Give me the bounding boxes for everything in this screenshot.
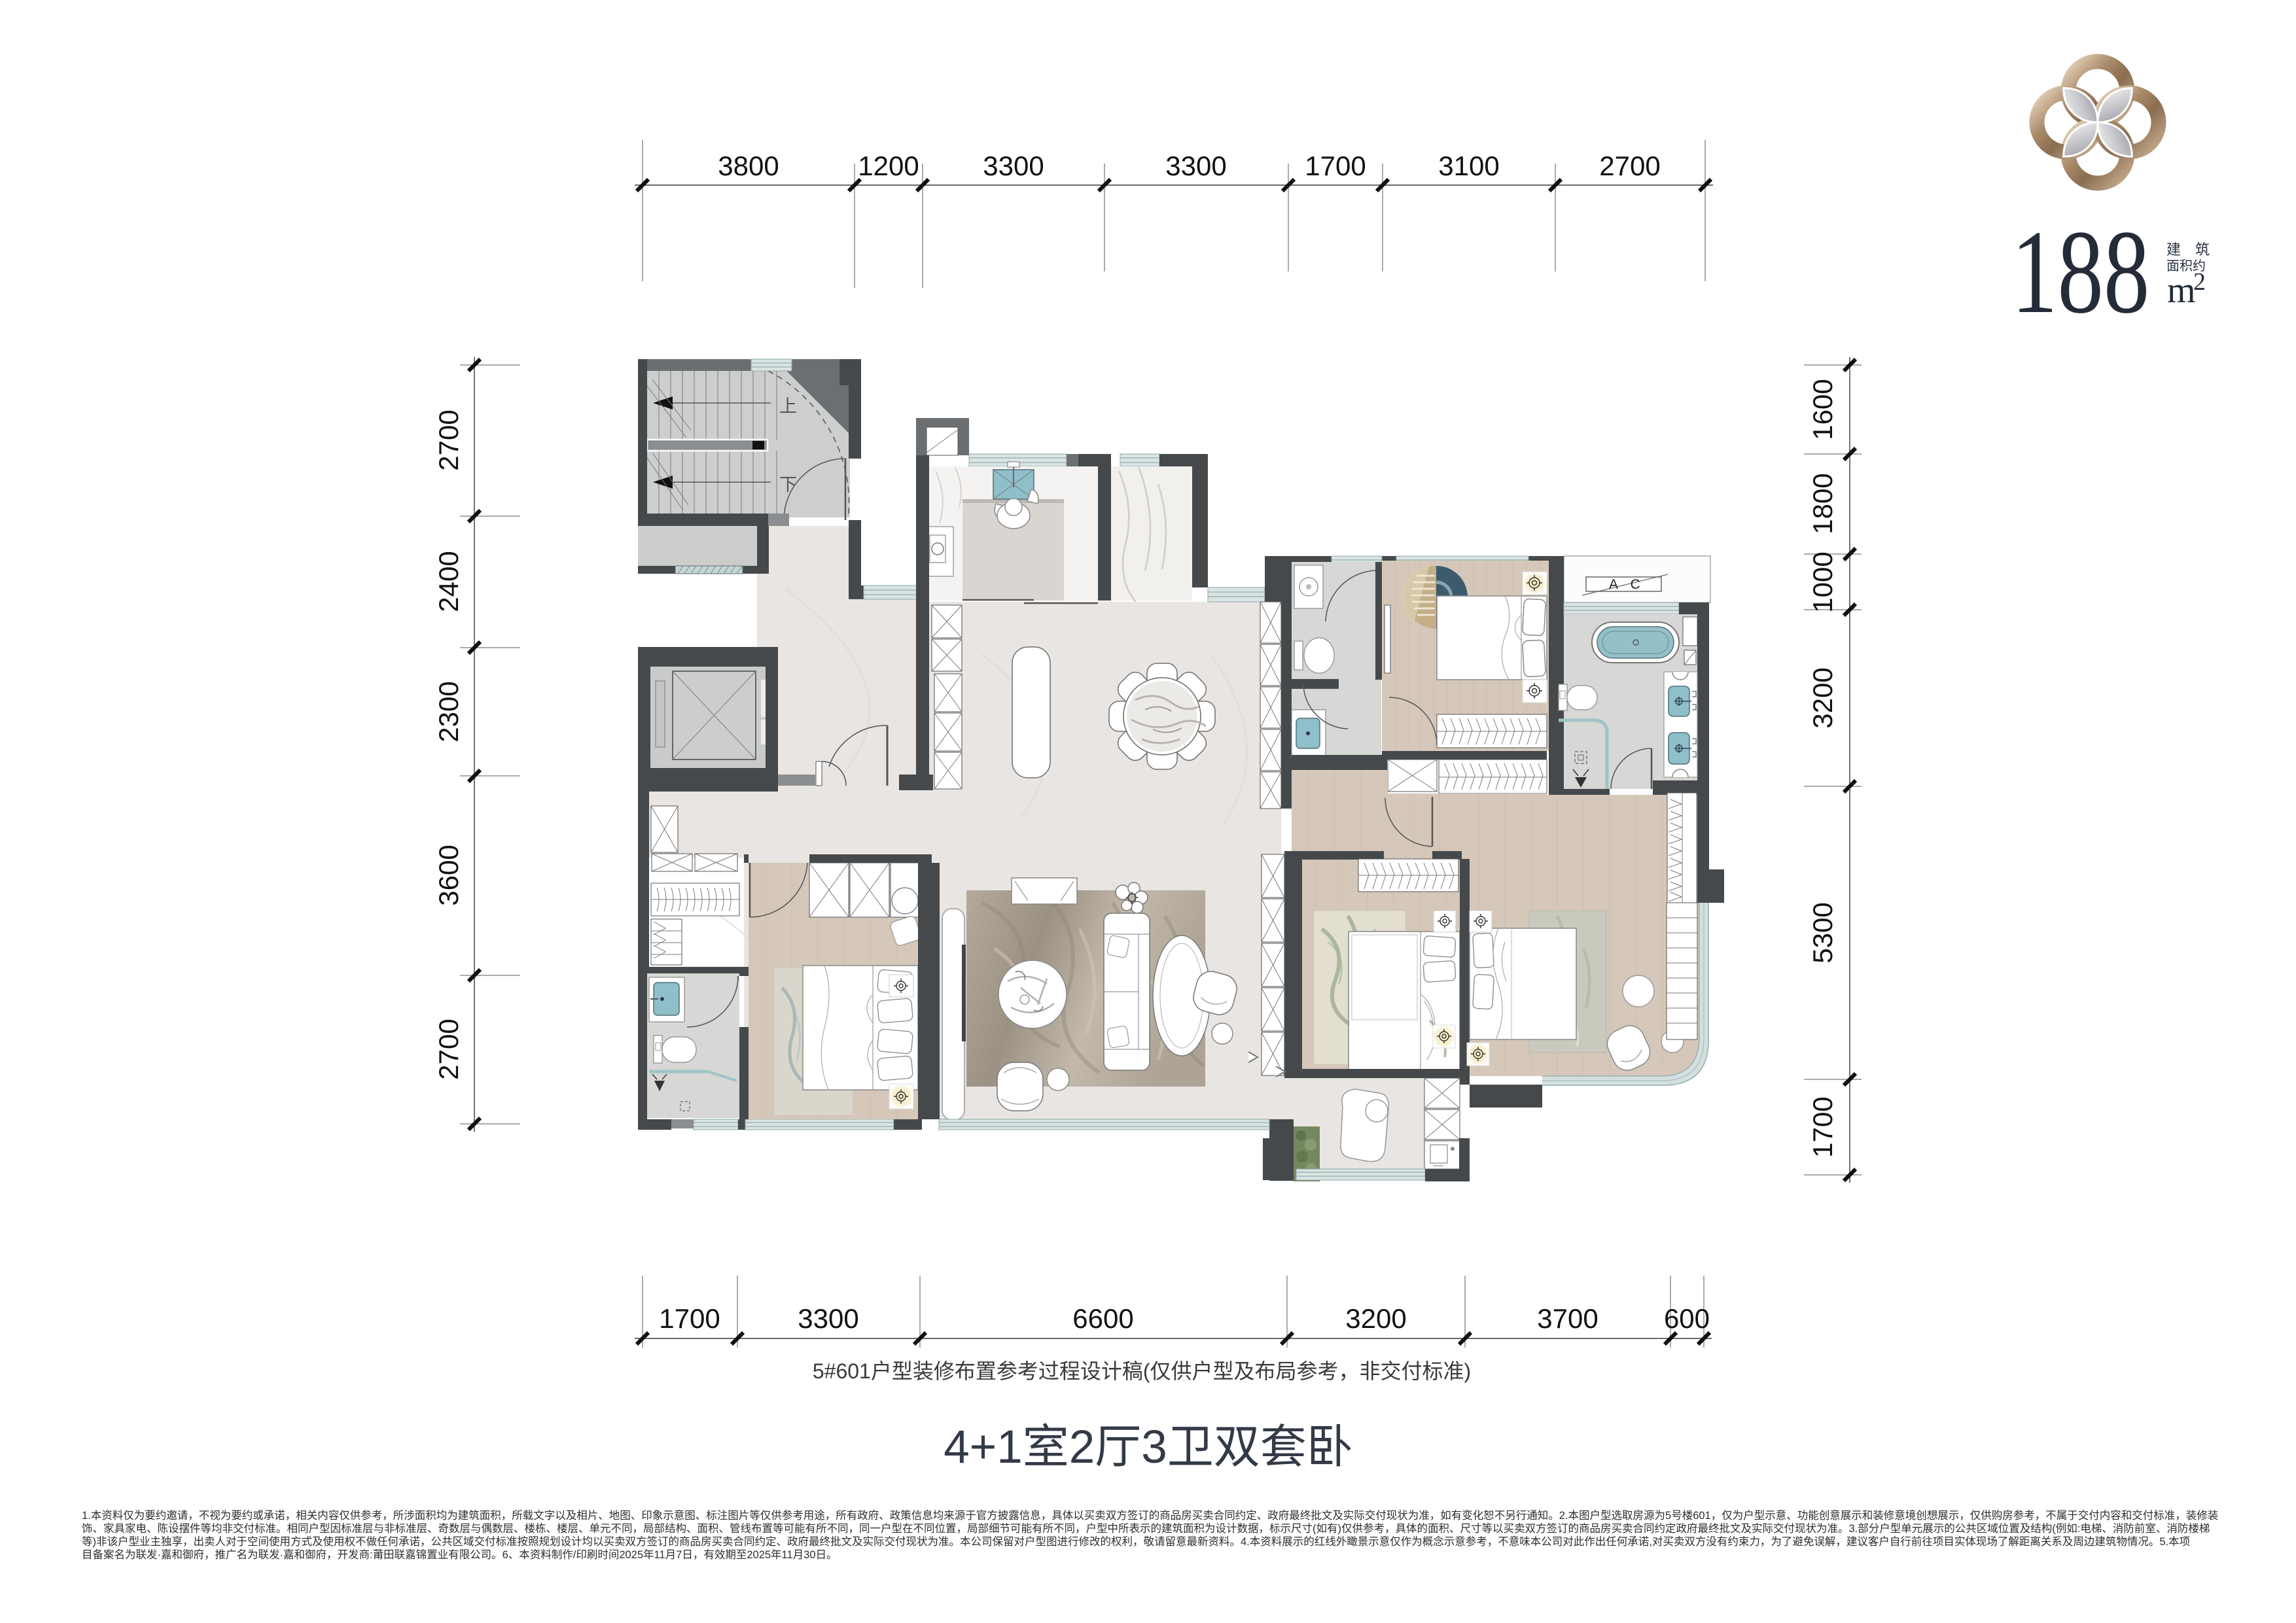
- svg-text:A C: A C: [1609, 577, 1645, 592]
- svg-text:4+1室2厅3卫双套卧: 4+1室2厅3卫双套卧: [944, 1422, 1352, 1473]
- svg-text:1000: 1000: [1807, 551, 1838, 612]
- svg-text:1200: 1200: [858, 150, 919, 181]
- svg-text:5300: 5300: [1807, 902, 1838, 963]
- svg-text:3700: 3700: [1537, 1303, 1598, 1334]
- svg-text:3100: 3100: [1438, 150, 1499, 181]
- svg-text:2400: 2400: [433, 551, 464, 612]
- svg-text:1800: 1800: [1807, 473, 1838, 534]
- svg-text:2700: 2700: [433, 410, 464, 470]
- svg-text:3300: 3300: [983, 150, 1044, 181]
- svg-text:1600: 1600: [1807, 379, 1838, 440]
- svg-text:建筑: 建筑: [2166, 241, 2224, 258]
- svg-text:1700: 1700: [1807, 1096, 1838, 1157]
- svg-text:1.本资料仅为要约邀请，不视为要约或承诺，相关内容仅供参考，: 1.本资料仅为要约邀请，不视为要约或承诺，相关内容仅供参考，所涉面积均为建筑面积…: [82, 1509, 2218, 1522]
- svg-text:3200: 3200: [1345, 1303, 1406, 1334]
- svg-text:6600: 6600: [1072, 1303, 1133, 1334]
- svg-text:3600: 3600: [433, 845, 464, 905]
- svg-text:188: 188: [2011, 206, 2149, 339]
- svg-text:上: 上: [779, 396, 797, 416]
- svg-text:m: m: [2167, 270, 2196, 311]
- svg-text:3300: 3300: [1165, 150, 1226, 181]
- svg-text:2: 2: [2193, 268, 2206, 296]
- svg-text:目备案名为联发·嘉和御府，推广名为联发·嘉和御府，开发商:莆: 目备案名为联发·嘉和御府，推广名为联发·嘉和御府，开发商:莆田联嘉锦置业有限公司…: [82, 1548, 838, 1561]
- svg-text:1700: 1700: [1305, 150, 1366, 181]
- svg-text:2700: 2700: [433, 1019, 464, 1079]
- svg-text:2300: 2300: [433, 681, 464, 742]
- svg-text:等)非该户型业主独享，出卖人对于空间使用方式及使用权不做任何: 等)非该户型业主独享，出卖人对于空间使用方式及使用权不做任何承诺，公共区域交付标…: [82, 1535, 2190, 1548]
- svg-text:3800: 3800: [718, 150, 779, 181]
- svg-text:600: 600: [1664, 1303, 1710, 1334]
- svg-text:3200: 3200: [1807, 667, 1838, 728]
- svg-text:1700: 1700: [659, 1303, 720, 1334]
- svg-text:饰、家具家电、陈设摆件等均非交付标准。相同户型因标准层与非标: 饰、家具家电、陈设摆件等均非交付标准。相同户型因标准层与非标准层、奇数层与偶数层…: [82, 1522, 2210, 1535]
- svg-text:3300: 3300: [798, 1303, 858, 1334]
- svg-text:5#601户型装修布置参考过程设计稿(仅供户型及布局参考，非: 5#601户型装修布置参考过程设计稿(仅供户型及布局参考，非交付标准): [813, 1359, 1471, 1383]
- svg-text:下: 下: [779, 475, 797, 495]
- svg-text:2700: 2700: [1599, 150, 1660, 181]
